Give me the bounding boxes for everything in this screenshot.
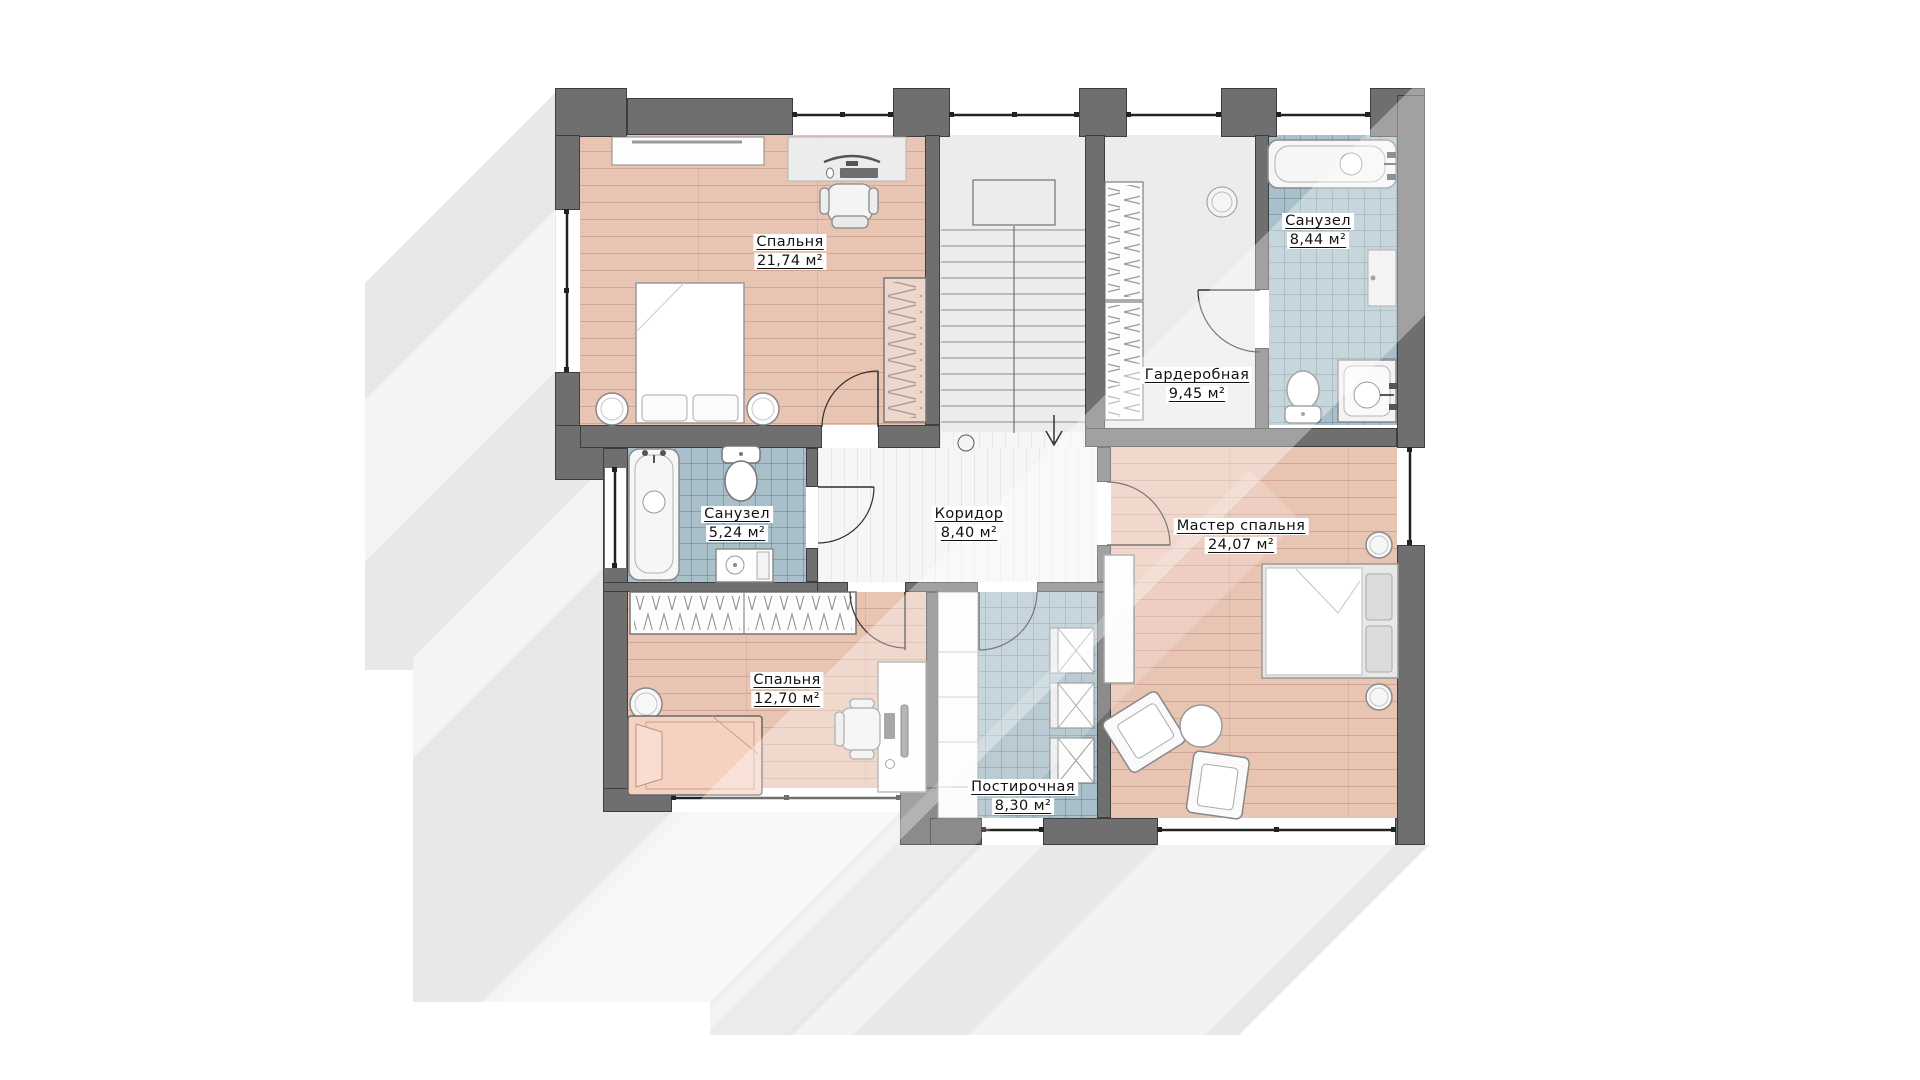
wall — [1397, 545, 1425, 845]
room-name: Спальня — [750, 672, 823, 689]
room-label-bedroom-2: Спальня 12,70 м² — [750, 672, 823, 708]
room-name: Мастер спальня — [1174, 518, 1309, 535]
room-area: 8,44 м² — [1287, 232, 1349, 249]
room-area: 5,24 м² — [706, 525, 768, 542]
floor-bedroom-1 — [580, 135, 925, 425]
window — [1126, 98, 1221, 134]
wall-pillar — [1221, 88, 1277, 137]
room-area: 12,70 м² — [751, 691, 823, 708]
light-streak — [482, 812, 900, 1002]
wall — [1085, 135, 1105, 430]
wall — [1085, 428, 1397, 447]
wall-pillar — [1079, 88, 1127, 137]
room-label-wardrobe: Гардеробная 9,45 м² — [1142, 367, 1252, 403]
room-name: Гардеробная — [1142, 367, 1252, 384]
room-name: Санузел — [1282, 213, 1354, 230]
wall — [925, 135, 940, 425]
wall — [1097, 545, 1111, 582]
floor-stair-hall — [940, 135, 1085, 432]
wall-pillar — [893, 88, 950, 137]
wall — [603, 788, 672, 812]
wall — [878, 425, 940, 448]
wall — [627, 98, 793, 135]
window — [792, 98, 893, 134]
wall — [930, 818, 982, 845]
wall — [603, 582, 818, 592]
wall — [580, 425, 822, 448]
room-area: 8,30 м² — [992, 798, 1054, 815]
window — [671, 788, 901, 812]
window — [557, 209, 578, 372]
room-label-bath-2: Санузел 5,24 м² — [701, 506, 773, 542]
wall — [1043, 818, 1158, 845]
room-name: Санузел — [701, 506, 773, 523]
room-area: 9,45 м² — [1166, 386, 1228, 403]
wall — [905, 582, 978, 592]
room-label-corridor: Коридор 8,40 м² — [932, 506, 1007, 542]
room-area: 21,74 м² — [754, 253, 826, 270]
light-streak — [365, 210, 555, 562]
room-name: Спальня — [753, 234, 826, 251]
floor-plan: Спальня 21,74 м² Гардеробная 9,45 м² Сан… — [0, 0, 1920, 1080]
window — [949, 98, 1079, 134]
window — [1399, 447, 1423, 545]
wall — [806, 448, 818, 487]
floor-bath-1 — [1269, 135, 1397, 425]
wall — [1255, 135, 1269, 290]
room-area: 8,40 м² — [938, 525, 1000, 542]
floor-stair-landing — [940, 432, 1085, 448]
wall — [1097, 592, 1111, 818]
wall — [926, 592, 938, 788]
light-streak — [413, 468, 603, 758]
wall — [555, 135, 580, 210]
room-name: Постирочная — [968, 779, 1078, 796]
room-area: 24,07 м² — [1205, 537, 1277, 554]
wall — [806, 548, 818, 582]
wall — [1255, 348, 1269, 430]
room-label-bath-1: Санузел 8,44 м² — [1282, 213, 1354, 249]
light-streak — [792, 845, 1043, 1035]
floor-master-bedroom — [1111, 447, 1397, 818]
room-label-master-bedroom: Мастер спальня 24,07 м² — [1174, 518, 1309, 554]
wall — [1397, 95, 1425, 448]
wall — [603, 448, 628, 812]
wall — [1097, 447, 1111, 482]
wall — [1037, 582, 1111, 592]
window — [1276, 98, 1370, 134]
window — [981, 820, 1044, 843]
room-label-laundry: Постирочная 8,30 м² — [968, 779, 1078, 815]
light-streak — [968, 845, 1395, 1035]
wall-pillar — [555, 88, 627, 137]
room-label-bedroom-1: Спальня 21,74 м² — [753, 234, 826, 270]
room-name: Коридор — [932, 506, 1007, 523]
window — [1157, 820, 1396, 843]
